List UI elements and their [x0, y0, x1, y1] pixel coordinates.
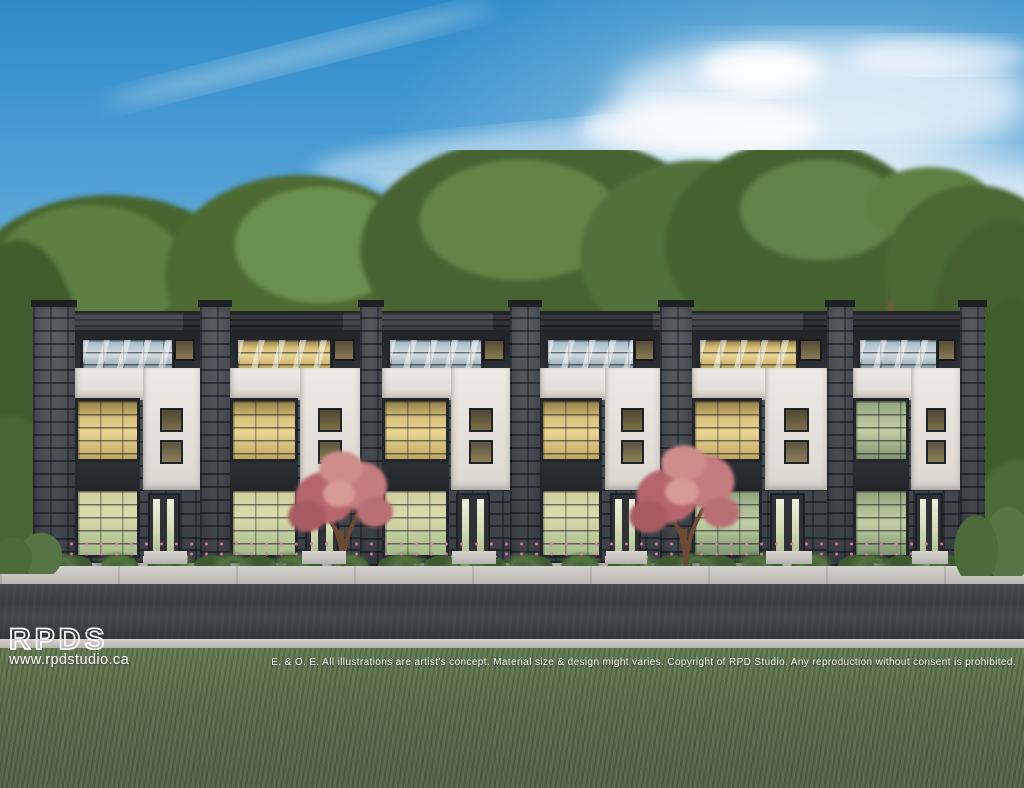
front-layer — [0, 0, 1024, 788]
entry-walkway-5 — [766, 551, 812, 564]
studio-website: www.rpdstudio.ca — [9, 652, 129, 668]
ornamental-tree-left — [281, 440, 405, 568]
entry-walkway-1 — [144, 551, 187, 564]
disclaimer-text: E. & O. E. All illustrations are artist'… — [170, 657, 1016, 668]
entry-walkway-2 — [302, 551, 346, 564]
entry-walkway-6 — [912, 551, 948, 564]
entry-walkway-3 — [452, 551, 496, 564]
entry-walkway-4 — [606, 551, 647, 564]
ornamental-tree-right — [620, 436, 752, 568]
rpds-logo-icon: RPDS — [8, 622, 158, 656]
architectural-rendering: RPDS www.rpdstudio.ca E. & O. E. All ill… — [0, 0, 1024, 788]
